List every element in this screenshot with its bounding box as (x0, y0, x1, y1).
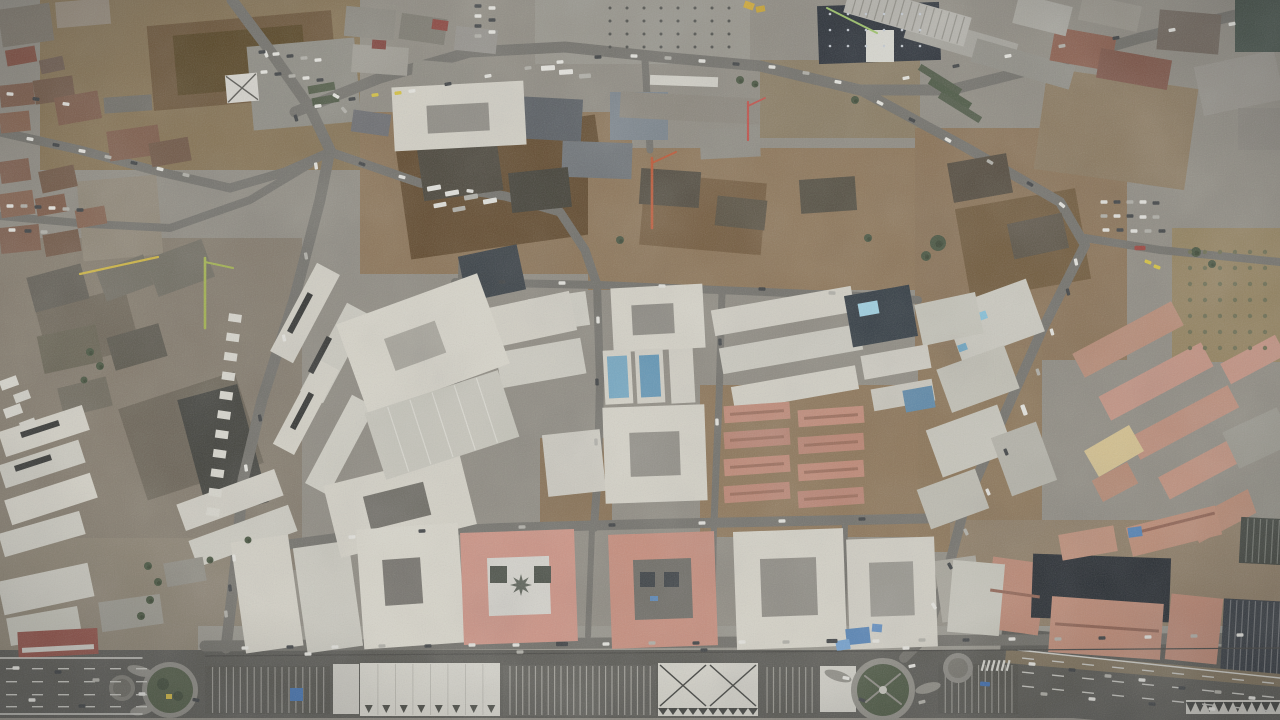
aerial-scene (0, 0, 1280, 720)
photo-overlay-layer (0, 0, 1280, 720)
aerial-photo (0, 0, 1280, 720)
vignette-overlay (0, 0, 1280, 720)
